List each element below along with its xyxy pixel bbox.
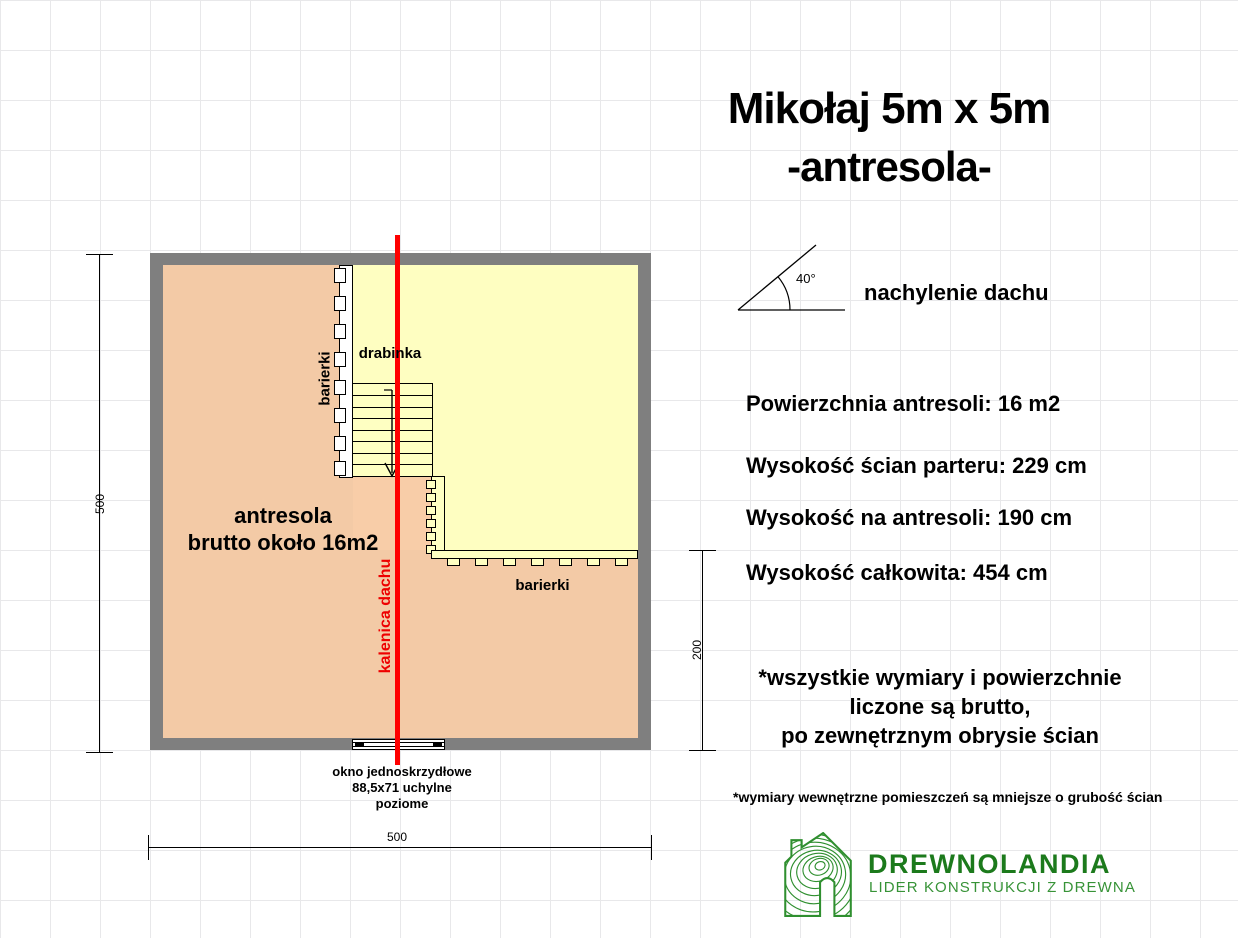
dimension-tick — [651, 835, 652, 860]
railing-post — [475, 558, 488, 566]
area-label-line2: brutto około 16m2 — [170, 529, 396, 556]
dimension-tick — [148, 835, 149, 860]
dimension-tick — [86, 254, 113, 255]
roof-angle-label: 40° — [796, 271, 816, 286]
railing-post — [334, 268, 346, 283]
roof-ridge-line — [395, 235, 400, 765]
railing-post — [426, 532, 436, 541]
gross-note-line1: *wszystkie wymiary i powierzchnie — [715, 663, 1165, 692]
railing-post — [334, 408, 346, 423]
roof-pitch-caption: nachylenie dachu — [864, 280, 1049, 306]
ridge-label: kalenica dachu — [377, 550, 393, 682]
railing-post — [587, 558, 600, 566]
drawing-title: Mikołaj 5m x 5m -antresola- — [679, 80, 1099, 196]
ladder-label: drabinka — [350, 345, 430, 362]
spec-ground-wall-height: Wysokość ścian parteru: 229 cm — [746, 453, 1087, 479]
railing-post — [447, 558, 460, 566]
roof-pitch-icon — [733, 240, 853, 316]
brand-tagline: LIDER KONSTRUKCJI Z DREWNA — [869, 879, 1136, 896]
railing-post — [334, 352, 346, 367]
dimension-label-left: 500 — [93, 474, 107, 534]
internal-dimensions-note: *wymiary wewnętrzne pomieszczeń są mniej… — [733, 789, 1163, 805]
railing-post — [615, 558, 628, 566]
railing-post — [334, 296, 346, 311]
spec-mezzanine-area: Powierzchnia antresoli: 16 m2 — [746, 391, 1060, 417]
railing-label-bottom: barierki — [505, 577, 580, 594]
spec-mezzanine-height: Wysokość na antresoli: 190 cm — [746, 505, 1072, 531]
area-label-line1: antresola — [170, 502, 396, 529]
brand-name: DREWNOLANDIA — [868, 849, 1111, 880]
window-label-line2: 88,5x71 uchylne — [329, 780, 475, 796]
railing-post — [334, 461, 346, 476]
gross-dimensions-note: *wszystkie wymiary i powierzchnie liczon… — [715, 663, 1165, 750]
railing-post — [426, 506, 436, 515]
dimension-label-right: 200 — [690, 620, 704, 680]
railing-post — [503, 558, 516, 566]
walk-line-arrow — [353, 384, 434, 478]
railing-post — [426, 493, 436, 502]
dimension-label-bottom: 500 — [367, 830, 427, 844]
dimension-tick — [689, 750, 716, 751]
drawing-title-line1: Mikołaj 5m x 5m — [679, 80, 1099, 138]
railing-post — [426, 480, 436, 489]
railing-post — [426, 519, 436, 528]
drewnolandia-logo-icon — [777, 832, 857, 918]
railing-post — [531, 558, 544, 566]
railing-label-left: barierki — [317, 344, 332, 414]
railing-post — [334, 380, 346, 395]
stairs — [352, 383, 433, 477]
dimension-tick — [689, 550, 716, 551]
window-label: okno jednoskrzydłowe 88,5x71 uchylne poz… — [329, 764, 475, 812]
window-label-line3: poziome — [329, 796, 475, 812]
floor-plan-drawing: Mikołaj 5m x 5m -antresola- 40° nachylen… — [0, 0, 1238, 938]
railing-post — [559, 558, 572, 566]
railing-post — [334, 324, 346, 339]
spec-total-height: Wysokość całkowita: 454 cm — [746, 560, 1048, 586]
mezzanine-area-label: antresola brutto około 16m2 — [170, 502, 396, 556]
gross-note-line2: liczone są brutto, — [715, 692, 1165, 721]
window-label-line1: okno jednoskrzydłowe — [329, 764, 475, 780]
dimension-line-bottom — [148, 847, 652, 848]
drawing-title-line2: -antresola- — [679, 138, 1099, 196]
railing-post — [334, 436, 346, 451]
gross-note-line3: po zewnętrznym obrysie ścian — [715, 721, 1165, 750]
dimension-tick — [86, 752, 113, 753]
